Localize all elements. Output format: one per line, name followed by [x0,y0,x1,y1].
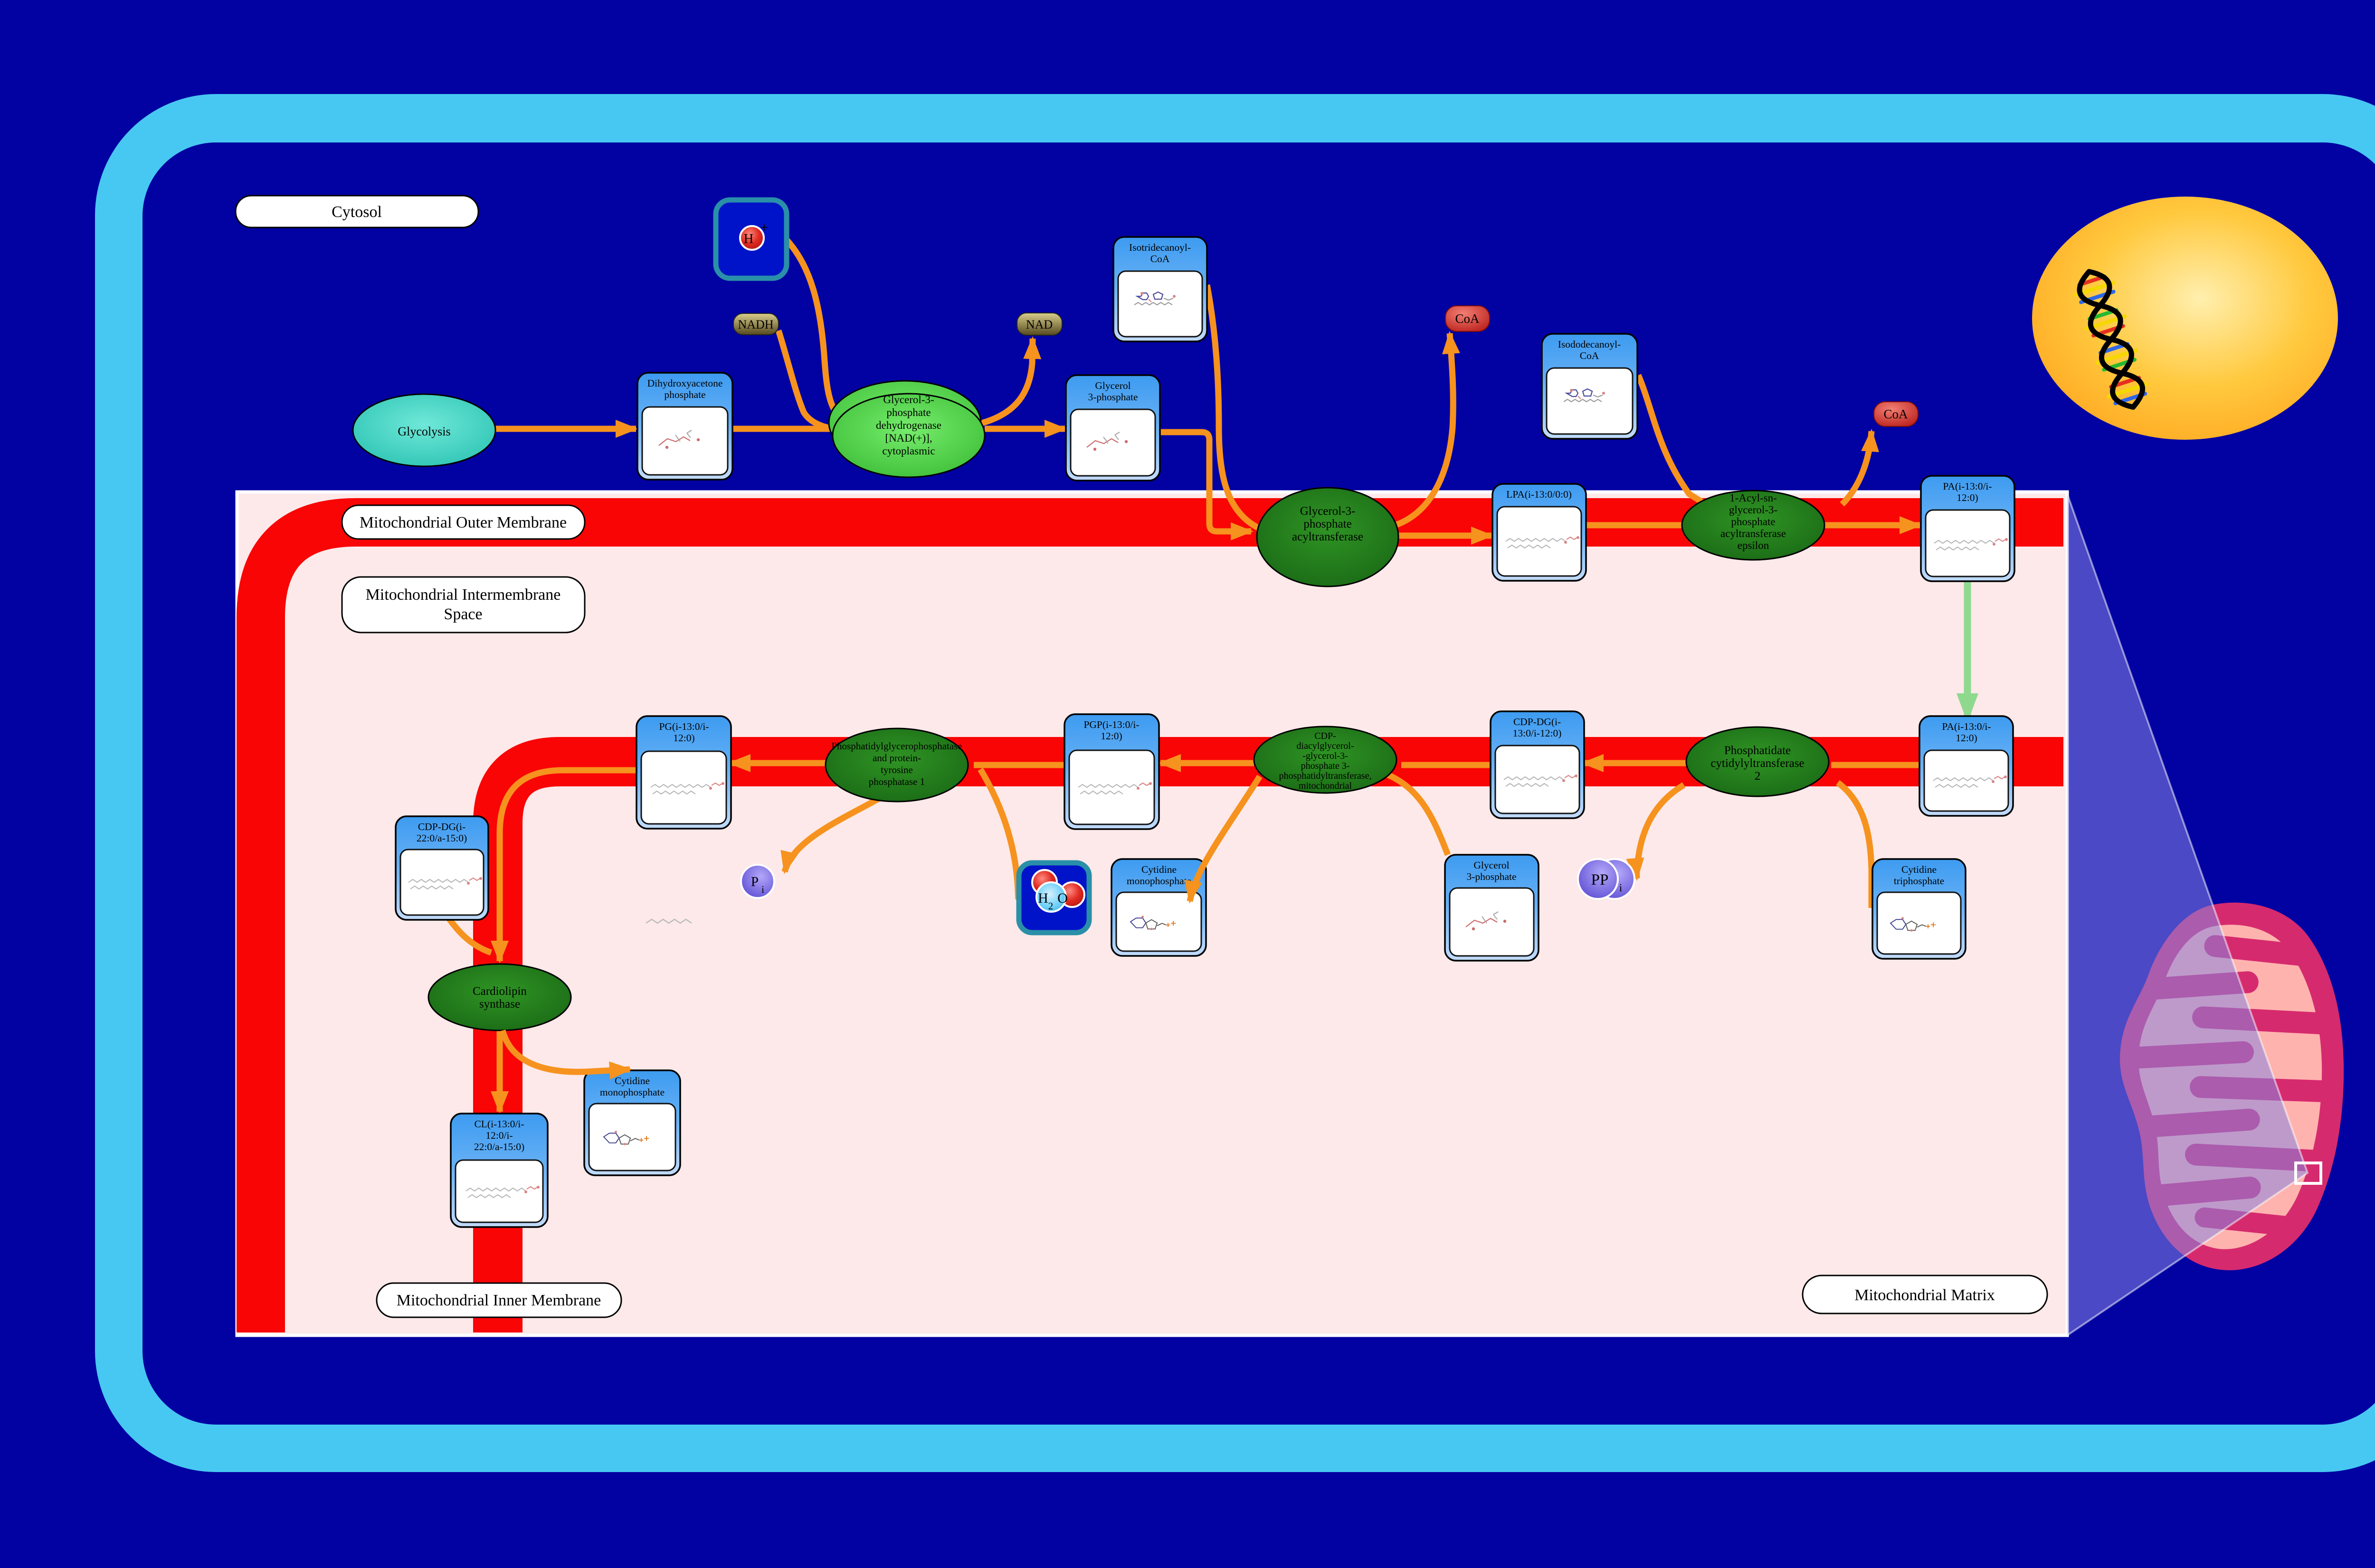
svg-text:PP: PP [1591,871,1609,888]
svg-text:Glycerol3-phosphate: Glycerol3-phosphate [1088,380,1138,403]
svg-text:CoA: CoA [1883,407,1908,421]
svg-text:NADH: NADH [738,318,773,331]
svg-text:i: i [761,884,764,895]
svg-text:H: H [1038,890,1048,906]
svg-text:+: + [760,219,768,236]
svg-text:Mitochondrial Outer Membrane: Mitochondrial Outer Membrane [360,514,567,531]
svg-text:CoA: CoA [1455,312,1480,326]
svg-text:CDP-DG(i-22:0/a-15:0): CDP-DG(i-22:0/a-15:0) [417,821,467,844]
svg-text:Mitochondrial Inner Membrane: Mitochondrial Inner Membrane [397,1292,601,1309]
svg-text:Glycerol3-phosphate: Glycerol3-phosphate [1466,860,1516,882]
svg-text:H: H [744,231,754,246]
svg-text:NAD: NAD [1026,318,1053,331]
svg-text:Cardiolipinsynthase: Cardiolipinsynthase [473,985,527,1011]
svg-text:i: i [1619,882,1622,894]
svg-text:P: P [751,874,759,889]
svg-text:Glycerol-3-phosphatedehydrogen: Glycerol-3-phosphatedehydrogenase[NAD(+)… [876,394,941,457]
svg-text:O: O [1057,890,1068,906]
svg-text:2: 2 [1048,900,1054,912]
svg-text:Mitochondrial Matrix: Mitochondrial Matrix [1854,1286,1995,1304]
svg-text:Cytosol: Cytosol [332,203,382,221]
svg-text:Glycolysis: Glycolysis [398,425,450,438]
svg-text:CDP-DG(i-13:0/i-12:0): CDP-DG(i-13:0/i-12:0) [1513,716,1562,739]
svg-text:LPA(i-13:0/0:0): LPA(i-13:0/0:0) [1506,489,1572,500]
